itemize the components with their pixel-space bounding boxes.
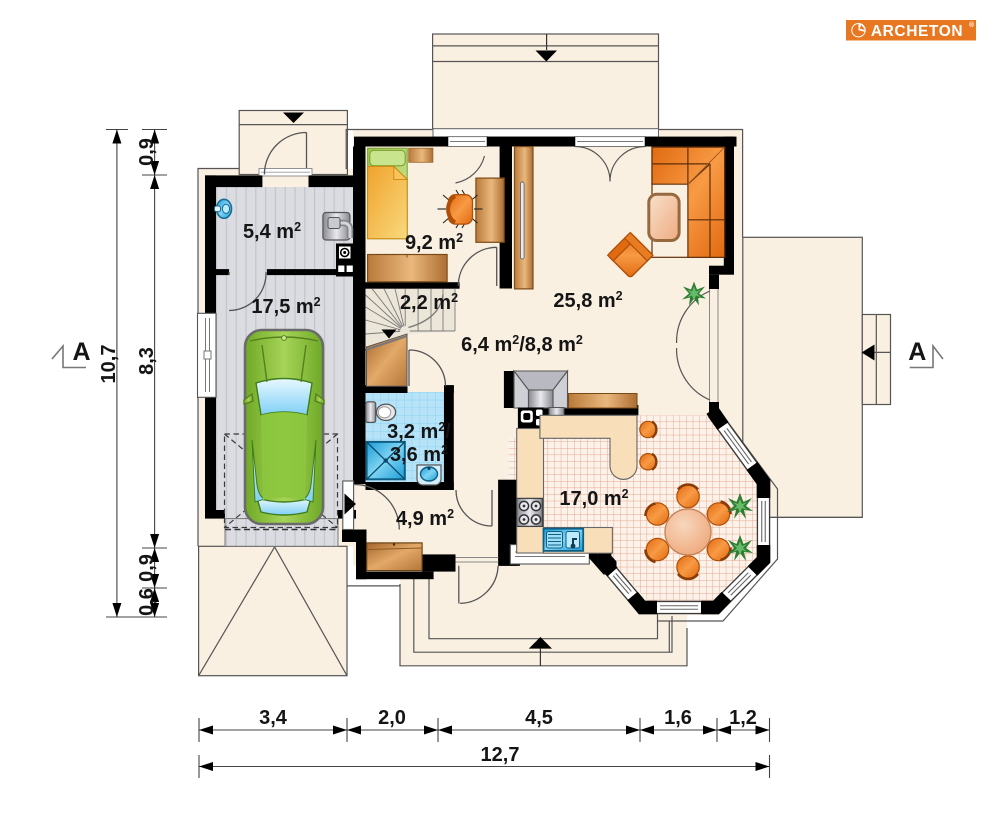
svg-text:25,8 m2: 25,8 m2 [553,289,622,312]
svg-text:6,4 m2/8,8 m2: 6,4 m2/8,8 m2 [461,333,583,356]
svg-text:1,6: 1,6 [664,707,692,729]
svg-text:12,7: 12,7 [481,744,520,766]
svg-text:4,5: 4,5 [525,707,553,729]
svg-text:17,5 m2: 17,5 m2 [251,295,320,318]
svg-text:9,2 m2: 9,2 m2 [405,231,463,254]
svg-text:A: A [908,338,926,366]
svg-text:10,7: 10,7 [98,345,120,384]
svg-text:2,0: 2,0 [378,707,406,729]
svg-text:A: A [72,338,90,366]
svg-text:17,0 m2: 17,0 m2 [559,487,628,510]
svg-text:5,4 m2: 5,4 m2 [243,220,301,243]
svg-text:3,4: 3,4 [259,707,288,729]
svg-text:0,9: 0,9 [136,554,158,582]
svg-text:0,9: 0,9 [136,138,158,166]
svg-text:0,6: 0,6 [136,588,158,616]
svg-text:2,2 m2: 2,2 m2 [400,291,458,314]
svg-text:1,2: 1,2 [729,707,757,729]
svg-text:®: ® [969,21,975,29]
svg-text:8,3: 8,3 [136,347,158,375]
svg-text:3,6 m2: 3,6 m2 [390,443,448,466]
svg-text:ARCHETON: ARCHETON [871,23,963,40]
svg-text:4,9 m2: 4,9 m2 [396,507,454,530]
